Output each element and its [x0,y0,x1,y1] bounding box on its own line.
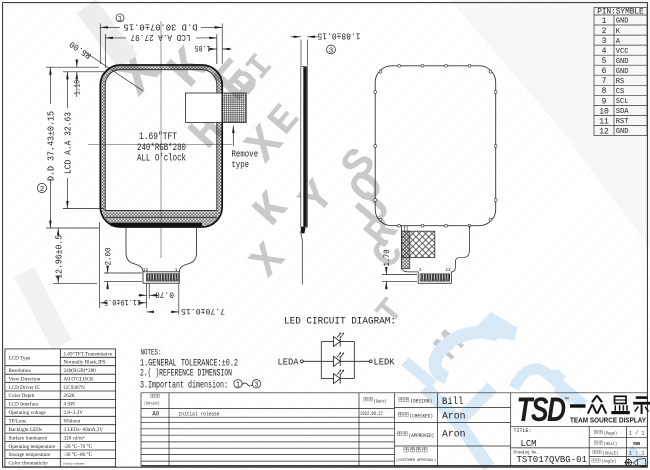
svg-text:(DESIGN): (DESIGN) [410,399,432,405]
svg-text:3: 3 [602,37,607,46]
svg-text:262K: 262K [64,393,76,399]
svg-text:Without: Without [64,419,81,425]
svg-text:Remove: Remove [232,149,259,160]
svg-text:TST017QVBG-01: TST017QVBG-01 [517,455,588,465]
svg-text:A0: A0 [152,410,160,417]
svg-text:-30 °C~80 °C: -30 °C~80 °C [64,451,93,458]
svg-text:1.88±0.15: 1.88±0.15 [318,31,361,41]
svg-text:2022.05.27: 2022.05.27 [360,411,383,417]
svg-text:RST: RST [616,118,629,126]
svg-text:(Page): (Page) [604,430,618,436]
svg-text:Operating voltage: Operating voltage [9,410,47,416]
svg-text:Storage temperature: Storage temperature [9,452,52,458]
svg-text:240(RGB)*280: 240(RGB)*280 [64,367,97,374]
svg-text:1.69"TFT,Transmissive: 1.69"TFT,Transmissive [64,351,114,357]
svg-text:D.D 30.07±0.15: D.D 30.07±0.15 [123,21,197,32]
svg-text:1.05: 1.05 [195,43,211,53]
svg-text:LCD A.A 32.63: LCD A.A 32.63 [63,112,74,174]
svg-text:1: 1 [236,382,240,390]
svg-text:(Date): (Date) [374,399,387,405]
svg-text:Color Depth: Color Depth [9,393,35,399]
svg-text:(Unit): (Unit) [604,441,618,447]
svg-text:(CUSTOMER APPROVAL): (CUSTOMER APPROVAL) [396,458,436,463]
svg-text:LEDK: LEDK [374,357,395,368]
svg-text:GND: GND [616,58,629,66]
svg-text:12: 12 [445,267,451,273]
svg-text:1: 1 [419,267,422,273]
svg-text:TEAM SOURCE DISPLAY: TEAM SOURCE DISPLAY [570,416,646,425]
svg-text:LCD A.A 27.97: LCD A.A 27.97 [131,32,191,42]
svg-text:-20 °C~70 °C: -20 °C~70 °C [64,443,93,450]
svg-text:D.D 37.43±0.15: D.D 37.43±0.15 [46,111,57,181]
svg-text:Normally Black,IPS: Normally Black,IPS [64,360,106,366]
svg-text:[dark] conform: [dark] conform [64,462,85,466]
svg-text:1.10: 1.10 [73,80,83,95]
svg-text:7.70±0.15: 7.70±0.15 [181,306,225,316]
svg-text:8: 8 [602,87,607,96]
svg-text:GND: GND [616,68,629,76]
svg-text:Initial release: Initial release [179,412,220,418]
svg-text:11: 11 [599,117,609,126]
svg-text:™: ™ [564,397,569,403]
svg-text:Color chromaticity: Color chromaticity [9,461,49,467]
svg-text:NOTES:: NOTES: [141,348,162,357]
svg-text:Backlight LEDs: Backlight LEDs [9,427,43,433]
svg-text:VCC: VCC [616,48,629,56]
svg-text:240*RGB*280: 240*RGB*280 [137,142,186,154]
svg-text:PIN:SYMBLE: PIN:SYMBLE [597,9,644,17]
svg-text:1: 1 [175,267,178,273]
svg-text:1 : 1: 1 : 1 [629,451,645,457]
svg-text:2.00: 2.00 [104,248,114,266]
svg-text:1: 1 [118,15,122,23]
svg-text:GND: GND [616,128,629,136]
svg-text:(APPROVED): (APPROVED) [409,433,435,439]
svg-text:Bill: Bill [442,396,464,408]
svg-text:SDA: SDA [616,108,629,116]
svg-text:R5.00: R5.00 [68,39,94,61]
svg-text:All O'CLOCK: All O'CLOCK [64,376,94,382]
svg-text:Aron: Aron [442,411,466,422]
svg-text:LCM: LCM [521,438,537,449]
svg-text:(SCALE): (SCALE) [602,450,618,456]
svg-text:9: 9 [602,97,607,106]
svg-text:CS: CS [616,88,624,96]
svg-text:3.Important dimension:: 3.Important dimension: [140,379,228,391]
svg-text:3: 3 [329,47,334,55]
svg-text:Y: Y [290,172,346,225]
svg-text:GND: GND [616,18,629,26]
svg-text:1 / 1: 1 / 1 [629,431,645,437]
svg-text:type: type [232,159,250,170]
svg-text:12: 12 [599,127,609,136]
svg-text:X: X [241,234,296,288]
svg-text:1: 1 [602,17,607,26]
svg-text:12: 12 [143,267,149,273]
svg-text:LCD Interface: LCD Interface [9,401,40,408]
svg-text:(Version): (Version) [144,401,160,407]
svg-text:6: 6 [602,67,607,76]
svg-text:2.( )REFERENCE DIMENSION: 2.( )REFERENCE DIMENSION [140,368,232,380]
svg-text:3 LEDs- 60mA,3V: 3 LEDs- 60mA,3V [64,427,104,433]
svg-text:1.70: 1.70 [382,250,392,267]
svg-text:Resolution: Resolution [9,368,32,374]
svg-text:10: 10 [599,107,609,116]
svg-text:2.8~3.3V: 2.8~3.3V [64,410,84,416]
svg-text:LEDA: LEDA [278,357,299,368]
svg-text:ALL O'clock: ALL O'clock [137,153,186,165]
svg-text:0.70: 0.70 [155,289,174,299]
svg-text:5: 5 [602,57,607,66]
svg-text:Aron: Aron [442,430,466,441]
svg-text:Surface luminance: Surface luminance [9,434,48,441]
svg-text:(CHECKED): (CHECKED) [410,413,434,419]
svg-text:2: 2 [40,186,45,194]
svg-text:mm: mm [633,440,640,447]
svg-text:320 cd/m²: 320 cd/m² [64,435,85,441]
svg-text:SCL: SCL [616,98,629,106]
svg-text:Operating temperature: Operating temperature [9,444,57,450]
svg-text:TP/Lens: TP/Lens [9,419,27,425]
svg-text:LCD Driver IC: LCD Driver IC [9,385,41,391]
svg-text:View Direction: View Direction [9,376,41,382]
svg-text:RS: RS [616,78,624,86]
svg-text:(Angle): (Angle) [601,459,616,465]
svg-text:7: 7 [602,77,607,86]
svg-text:LCD Type: LCD Type [9,356,32,362]
svg-text:3: 3 [254,382,258,390]
svg-text:4 SPI: 4 SPI [64,402,76,408]
svg-text:1.69"TFT: 1.69"TFT [139,131,177,143]
svg-text:LED CIRCUIT DIAGRAM:: LED CIRCUIT DIAGRAM: [284,316,396,328]
svg-text:TITLE:: TITLE: [514,428,532,434]
svg-text:4: 4 [602,47,607,56]
svg-text:TSD: TSD [517,391,566,429]
svg-text:2: 2 [602,27,607,36]
svg-text:GC9307N: GC9307N [64,385,86,391]
svg-text:11.19±0.5: 11.19±0.5 [104,297,141,307]
svg-text:12.96±0.5: 12.96±0.5 [54,235,64,279]
